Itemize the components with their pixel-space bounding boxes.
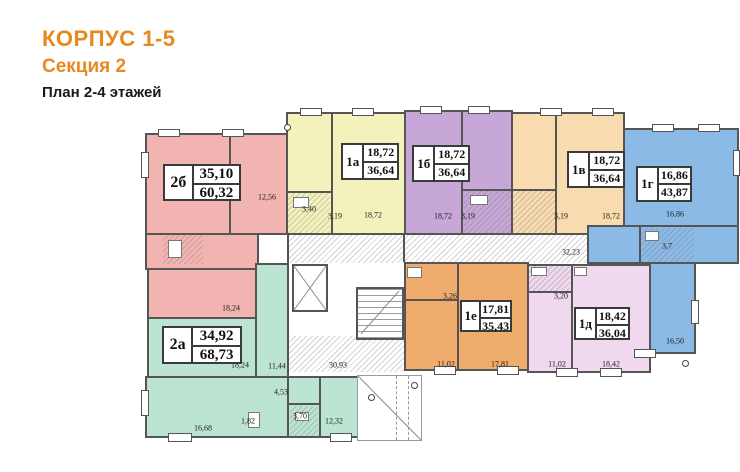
total-area-value: 36,64 [590,171,623,187]
apartment-label-1г: 1г16,8643,87 [636,166,692,202]
plumbing-fixture [470,195,488,205]
room-area-label: 11,02 [437,360,455,369]
window-marker [141,390,149,416]
living-area-value: 16,86 [659,168,690,185]
room-area-label: 3,19 [461,212,475,221]
room-area-label: 16,86 [666,210,684,219]
apartment-label-1д: 1д18,4236,04 [574,307,630,340]
room-area-label: 3,70 [293,412,307,421]
living-area-value: 34,92 [193,328,240,347]
column-marker [368,394,375,401]
window-marker [468,106,490,114]
room-area-label: 18,24 [222,304,240,313]
room-area-label: 17,81 [491,360,509,369]
living-area-value: 18,72 [435,147,468,165]
room-area-label: 3,7 [662,242,672,251]
window-marker [330,433,352,442]
apartment-region-2б [145,233,259,270]
apartment-label-1б: 1б18,7236,64 [412,145,470,182]
room-area-label: 3,40 [302,205,316,214]
room-area-label: 3,19 [328,212,342,221]
plumbing-fixture [574,267,587,276]
column-marker [411,382,418,389]
total-area-value: 36,64 [364,163,397,179]
room-area-label: 16,68 [194,424,212,433]
apartment-id: 1е [462,302,481,330]
room-area-label: 3,26 [443,292,457,301]
total-area-value: 36,04 [597,326,628,341]
window-marker [634,349,656,358]
window-marker [420,106,442,114]
living-area-value: 18,42 [597,309,628,326]
room-area-label: 32,23 [562,248,580,257]
room-area-label: 12,32 [325,417,343,426]
apartment-id: 1в [569,153,590,186]
apartment-id: 1б [414,147,435,180]
plumbing-fixture [531,267,547,276]
title-block: КОРПУС 1-5 Секция 2 План 2-4 этажей [42,26,176,101]
total-area-value: 68,73 [193,347,240,364]
room-area-label: 1,82 [241,417,255,426]
window-marker [733,150,740,176]
living-area-value: 35,10 [194,166,239,185]
window-marker [168,433,192,442]
window-marker [158,129,180,137]
window-marker [222,129,244,137]
porch-line [408,376,409,440]
room-area-label: 30,93 [329,361,347,370]
total-area-value: 36,64 [435,165,468,181]
room-area-label: 18,72 [602,212,620,221]
hatched-area [289,336,405,372]
apartment-id: 1а [343,145,364,178]
window-marker [652,124,674,132]
window-marker [592,108,614,116]
plan-subtitle: План 2-4 этажей [42,84,176,101]
window-marker [600,368,622,377]
apartment-id: 1г [638,168,659,200]
room-area-label: 11,02 [548,360,566,369]
total-area-value: 35,43 [481,319,510,334]
window-marker [352,108,374,116]
room-area-label: 18,72 [434,212,452,221]
apartment-region-2б [147,268,257,319]
apartment-id: 2б [165,166,194,199]
apartment-id: 1д [576,309,597,338]
section-title: Секция 2 [42,56,176,78]
plumbing-fixture [168,240,182,258]
hatched-area [289,235,587,263]
apartment-label-1в: 1в18,7236,64 [567,151,625,188]
living-area-value: 17,81 [481,302,510,319]
window-marker [540,108,562,116]
apartment-region-2а [145,376,361,438]
window-marker [141,152,149,178]
living-area-value: 18,72 [364,145,397,163]
room-area-label: 18,42 [602,360,620,369]
room-area-label: 3,19 [554,212,568,221]
plumbing-fixture [645,231,659,241]
apartment-label-2а: 2а34,9268,73 [162,326,242,364]
room-area-label: 4,53 [274,388,288,397]
window-marker [698,124,720,132]
room-area-label: 3,20 [554,292,568,301]
staircase [356,287,404,340]
total-area-value: 60,32 [194,185,239,202]
column-marker [682,360,689,367]
porch-line [396,376,397,440]
room-area-label: 11,44 [268,362,286,371]
room-area-label: 16,50 [666,337,684,346]
living-area-value: 18,72 [590,153,623,171]
building-title: КОРПУС 1-5 [42,26,176,52]
window-marker [691,300,699,324]
total-area-value: 43,87 [659,185,690,200]
room-area-label: 12,56 [258,193,276,202]
window-marker [300,108,322,116]
column-marker [284,124,291,131]
apartment-label-1е: 1е17,8135,43 [460,300,512,332]
plumbing-fixture [407,267,422,278]
room-area-label: 18,72 [364,211,382,220]
floor-plan-page: КОРПУС 1-5 Секция 2 План 2-4 этажей 12,5… [0,0,740,472]
apartment-label-2б: 2б35,1060,32 [163,164,241,201]
apartment-label-1а: 1а18,7236,64 [341,143,399,180]
window-marker [556,368,578,377]
elevator-shaft [292,264,328,312]
apartment-id: 2а [164,328,193,362]
